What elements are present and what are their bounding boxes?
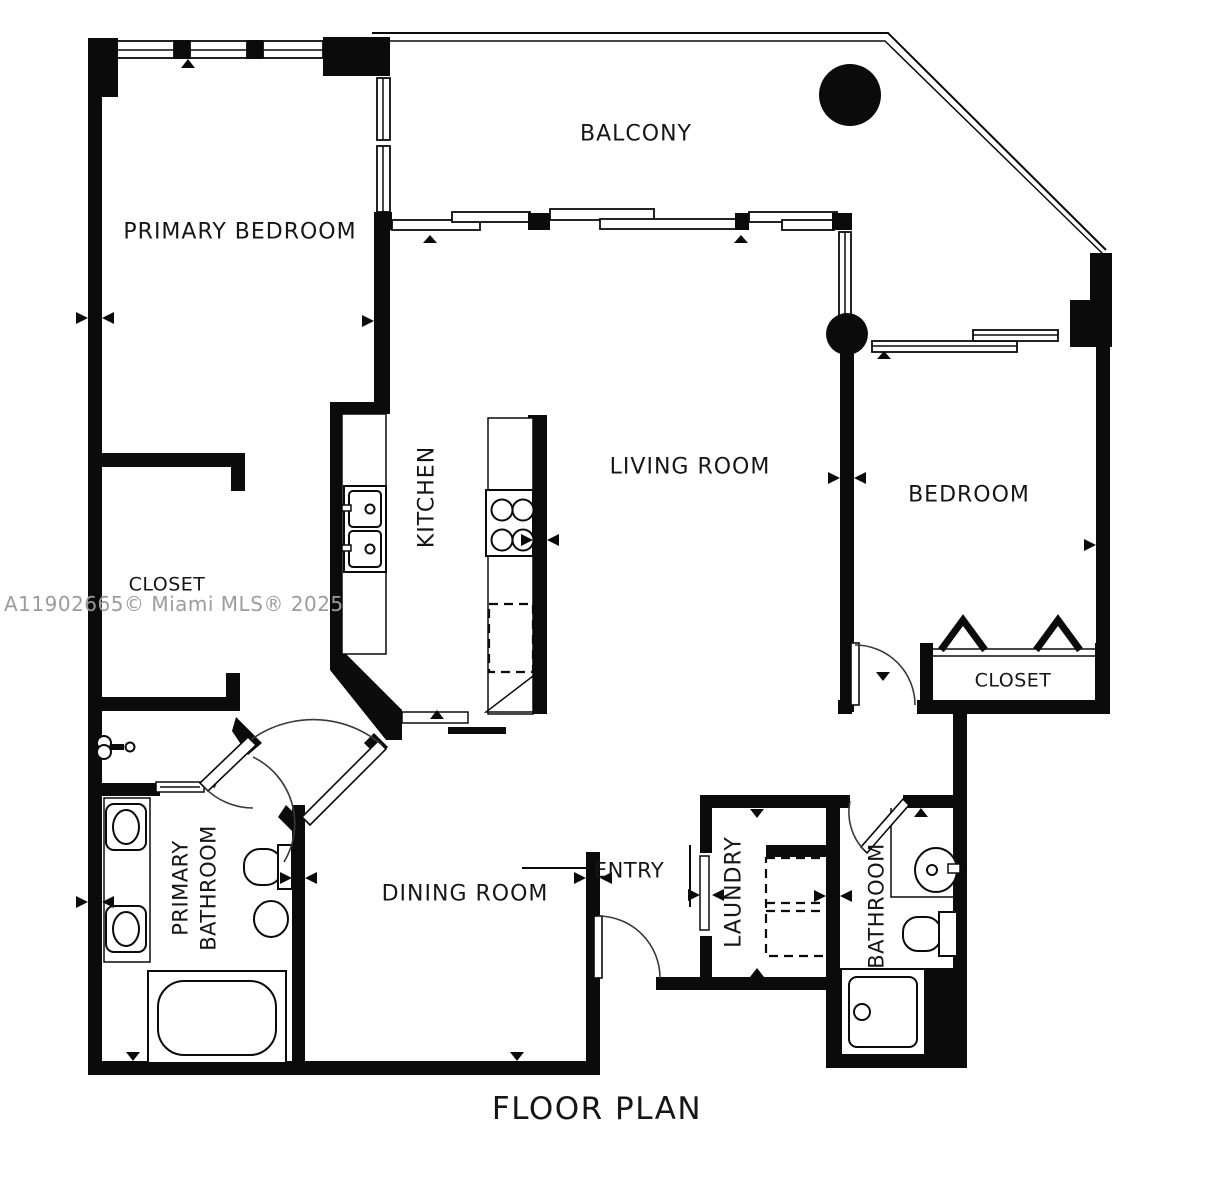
burner: [492, 500, 513, 521]
marker-triangle: [734, 235, 748, 243]
marker-triangle: [510, 1052, 524, 1061]
wall: [174, 40, 190, 59]
sink-faucet: [342, 505, 351, 511]
doors: [200, 643, 915, 978]
vanity-sink-bowl: [113, 912, 139, 946]
balcony-label: BALCONY: [580, 122, 692, 147]
marker-triangle: [423, 235, 437, 243]
wall-slider-post: [735, 213, 749, 230]
bathtub-basin: [158, 981, 276, 1055]
marker-arrow: [854, 472, 866, 484]
bedroom-door-leaf: [851, 643, 859, 705]
wall-bedroom-bottom: [917, 700, 1110, 714]
wall: [586, 977, 598, 990]
wall-laundry-top: [700, 795, 840, 808]
toilet-tank: [939, 912, 957, 956]
wall-closet-bottom: [88, 697, 240, 711]
marker-triangle: [126, 1052, 140, 1061]
wall-kitchen-corner: [330, 652, 402, 740]
marker-triangle: [876, 672, 890, 681]
sliding-door-panel: [452, 212, 530, 222]
burner: [492, 530, 513, 551]
sliding-door-panel: [782, 220, 834, 230]
wall-stub: [231, 467, 245, 491]
structural-column-small: [826, 313, 868, 355]
wall-faucet-knob: [126, 743, 135, 752]
wall-left-exterior: [88, 38, 102, 1075]
wall: [838, 700, 852, 714]
windows: [117, 41, 1058, 352]
wall-kitchen-island: [533, 415, 547, 714]
bathroom-door-swing: [849, 801, 864, 850]
bifold-door: [941, 620, 985, 650]
bifold-door: [1036, 620, 1080, 650]
entry-label: ENTRY: [594, 858, 664, 882]
wall-bedroom-corner: [1070, 300, 1112, 347]
wall: [826, 990, 840, 1060]
entry-door-leaf: [594, 916, 602, 978]
wall: [953, 714, 967, 798]
sliding-door-panel: [600, 219, 740, 229]
marker-arrow: [76, 896, 88, 908]
closet-bifold-doors: [933, 620, 1095, 656]
marker-arrow: [547, 534, 559, 546]
wall-kitchen-left: [330, 402, 342, 658]
sink-drain: [366, 545, 375, 554]
primary-bedroom-label: PRIMARY BEDROOM: [123, 220, 356, 245]
wall-bedroom-right: [1096, 345, 1110, 645]
wall-laundry-left-lower: [700, 936, 712, 990]
vanity-sink-bowl: [113, 810, 139, 844]
floor-plan-page: BALCONY PRIMARY BEDROOM LIVING ROOM KITC…: [0, 0, 1216, 1200]
laundry-sliding-door: [700, 856, 709, 930]
wall-shower-corner: [919, 968, 967, 1066]
marker-arrow: [574, 872, 586, 884]
kitchen-step-line: [448, 727, 506, 734]
sink-faucet: [342, 545, 351, 551]
wall-slider-post: [528, 213, 550, 230]
bidet-oval: [254, 901, 288, 937]
marker-triangle: [914, 808, 928, 817]
shower-drain: [854, 1004, 870, 1020]
marker-triangle: [750, 809, 764, 818]
angled-door-swing: [204, 787, 253, 808]
marker-arrow: [814, 890, 826, 902]
marker-arrow: [688, 889, 700, 901]
dining-room-label: DINING ROOM: [382, 882, 549, 907]
wall-laundry-stub: [766, 845, 833, 857]
wall: [374, 212, 392, 230]
wall-primary-bedroom-right: [374, 230, 390, 414]
wall-laundry-left-upper: [700, 795, 712, 853]
room-labels: BALCONY PRIMARY BEDROOM LIVING ROOM KITC…: [123, 122, 1051, 969]
sink-drain: [366, 505, 375, 514]
marker-arrow: [1084, 539, 1096, 551]
burner: [513, 500, 534, 521]
marker-arrow: [76, 312, 88, 324]
marker-arrow: [305, 872, 317, 884]
structural-column-large: [819, 64, 881, 126]
marker-arrow: [102, 312, 114, 324]
wall-dining-divider: [292, 805, 305, 1061]
angled-door-leaf: [302, 741, 386, 825]
marker-arrow: [362, 315, 374, 327]
laundry-label: LAUNDRY: [722, 836, 747, 948]
living-room-label: LIVING ROOM: [610, 455, 771, 480]
primary-bathroom-label-line2: BATHROOM: [196, 825, 220, 951]
wall-closet-right: [1095, 643, 1110, 714]
kitchen-label: KITCHEN: [415, 446, 440, 548]
toilet-bowl: [244, 849, 282, 885]
page-title: FLOOR PLAN: [492, 1091, 702, 1127]
wall-closet-left: [920, 643, 933, 703]
mls-watermark: A11902665© Miami MLS® 2025: [4, 592, 344, 616]
marker-triangle: [750, 968, 764, 977]
marker-arrow: [828, 472, 840, 484]
wall: [323, 37, 390, 76]
entry-door-swing: [598, 916, 660, 978]
floor-plan-drawing: BALCONY PRIMARY BEDROOM LIVING ROOM KITC…: [0, 0, 1216, 1200]
toilet-bowl: [903, 917, 941, 951]
stacked-washer-dryer-dashed: [766, 858, 828, 956]
bedroom-closet-label: CLOSET: [975, 670, 1052, 692]
bedroom-label: BEDROOM: [908, 483, 1030, 508]
wall-bathroom-top: [88, 783, 160, 796]
bathroom-sink-faucet: [948, 864, 960, 873]
marker-triangle: [181, 59, 195, 68]
wall-slider-post: [832, 213, 852, 230]
kitchen-island-counter: [488, 418, 533, 714]
bathroom-sink-drain: [927, 865, 937, 875]
wall-closet-top: [88, 453, 245, 467]
primary-bathroom-label-line1: PRIMARY: [168, 840, 192, 936]
wall-faucet: [97, 745, 111, 759]
marker-arrow: [840, 890, 852, 902]
wall-entry-bottom: [656, 977, 840, 990]
wall: [247, 40, 263, 59]
angled-door-leaf: [200, 737, 256, 791]
wall-faucet-stem: [110, 744, 124, 750]
bathroom-label: BATHROOM: [864, 843, 888, 969]
wall-stub: [226, 673, 240, 699]
